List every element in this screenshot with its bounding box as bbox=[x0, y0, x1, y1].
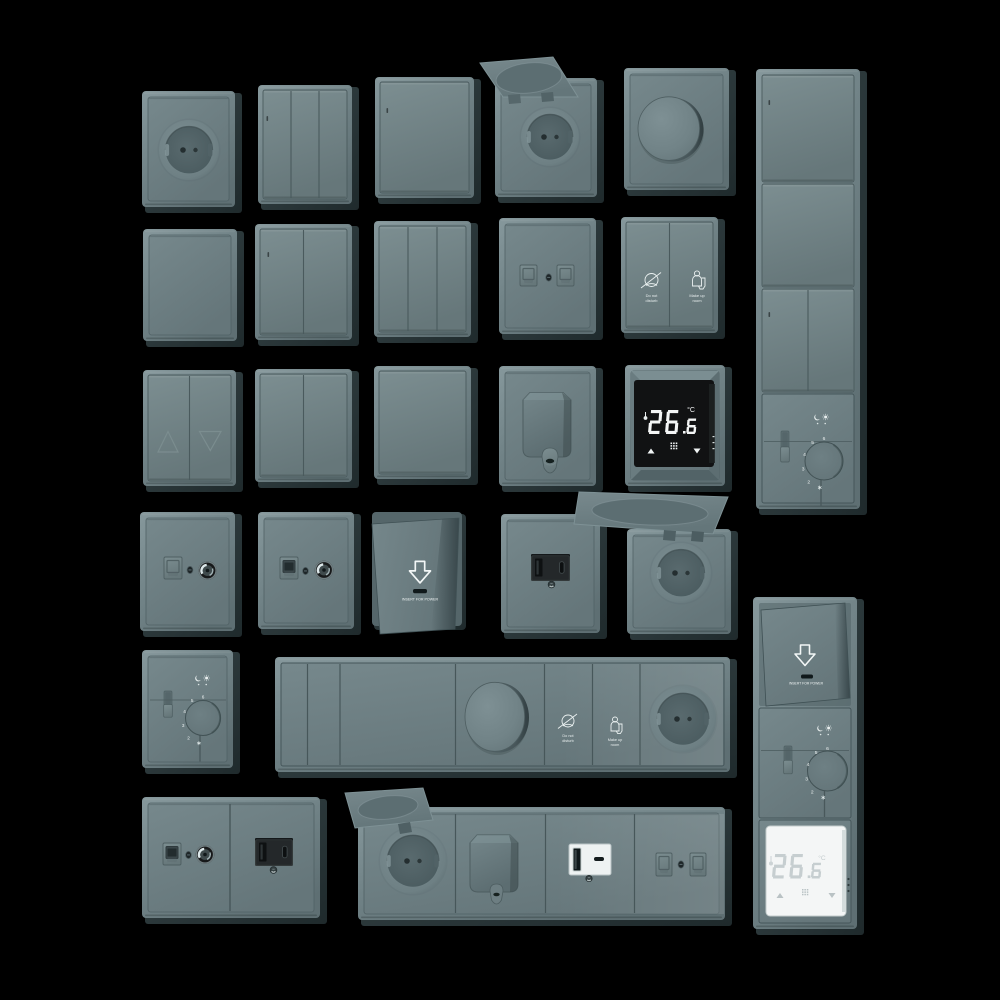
svg-text:2: 2 bbox=[807, 479, 810, 485]
svg-text:6: 6 bbox=[826, 746, 829, 752]
svg-text:5: 5 bbox=[191, 698, 194, 703]
svg-text:disturb: disturb bbox=[645, 298, 658, 303]
svg-text:disturb: disturb bbox=[562, 739, 573, 743]
svg-text:4: 4 bbox=[803, 452, 806, 458]
svg-text:3: 3 bbox=[805, 777, 808, 783]
svg-text:2: 2 bbox=[187, 735, 190, 740]
svg-text:Make up: Make up bbox=[608, 738, 623, 742]
svg-text:5: 5 bbox=[811, 440, 814, 446]
svg-text:3: 3 bbox=[182, 723, 185, 728]
svg-text:°C: °C bbox=[687, 406, 695, 414]
svg-text:°C: °C bbox=[818, 854, 826, 862]
svg-text:6: 6 bbox=[823, 436, 826, 442]
svg-text:5: 5 bbox=[815, 750, 818, 756]
svg-text:Do not: Do not bbox=[562, 734, 574, 738]
svg-text:INSERT FOR POWER: INSERT FOR POWER bbox=[789, 682, 824, 686]
svg-text:6: 6 bbox=[202, 694, 205, 699]
svg-text:3: 3 bbox=[802, 467, 805, 473]
svg-text:room: room bbox=[692, 298, 702, 303]
svg-text:4: 4 bbox=[183, 709, 186, 714]
svg-text:INSERT FOR POWER: INSERT FOR POWER bbox=[402, 598, 439, 602]
svg-text:4: 4 bbox=[807, 762, 810, 768]
svg-text:room: room bbox=[611, 743, 620, 747]
svg-text:2: 2 bbox=[811, 789, 814, 795]
